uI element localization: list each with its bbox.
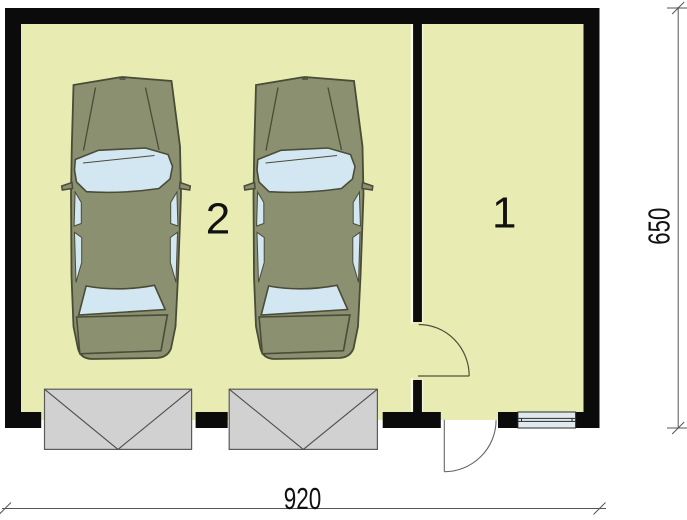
svg-text:2: 2 bbox=[206, 195, 230, 244]
svg-text:650: 650 bbox=[643, 208, 677, 245]
svg-text:1: 1 bbox=[492, 189, 516, 238]
svg-text:920: 920 bbox=[284, 482, 322, 516]
